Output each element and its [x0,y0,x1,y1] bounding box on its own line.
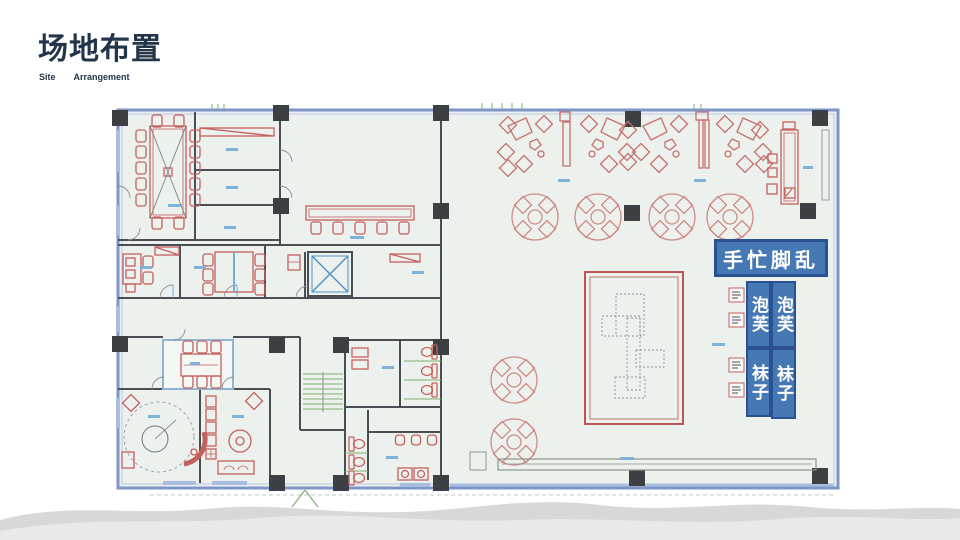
wave-decoration [0,502,960,540]
booth-label-2: 泡芙 [771,281,796,348]
booth-label-1: 泡芙 [746,281,771,348]
slide: 场地布置 Site Arrangement [0,0,960,540]
booth-label-3: 袜子 [746,348,771,417]
booth-label-4: 袜子 [771,348,796,419]
banner-label: 手忙脚乱 [714,239,828,277]
